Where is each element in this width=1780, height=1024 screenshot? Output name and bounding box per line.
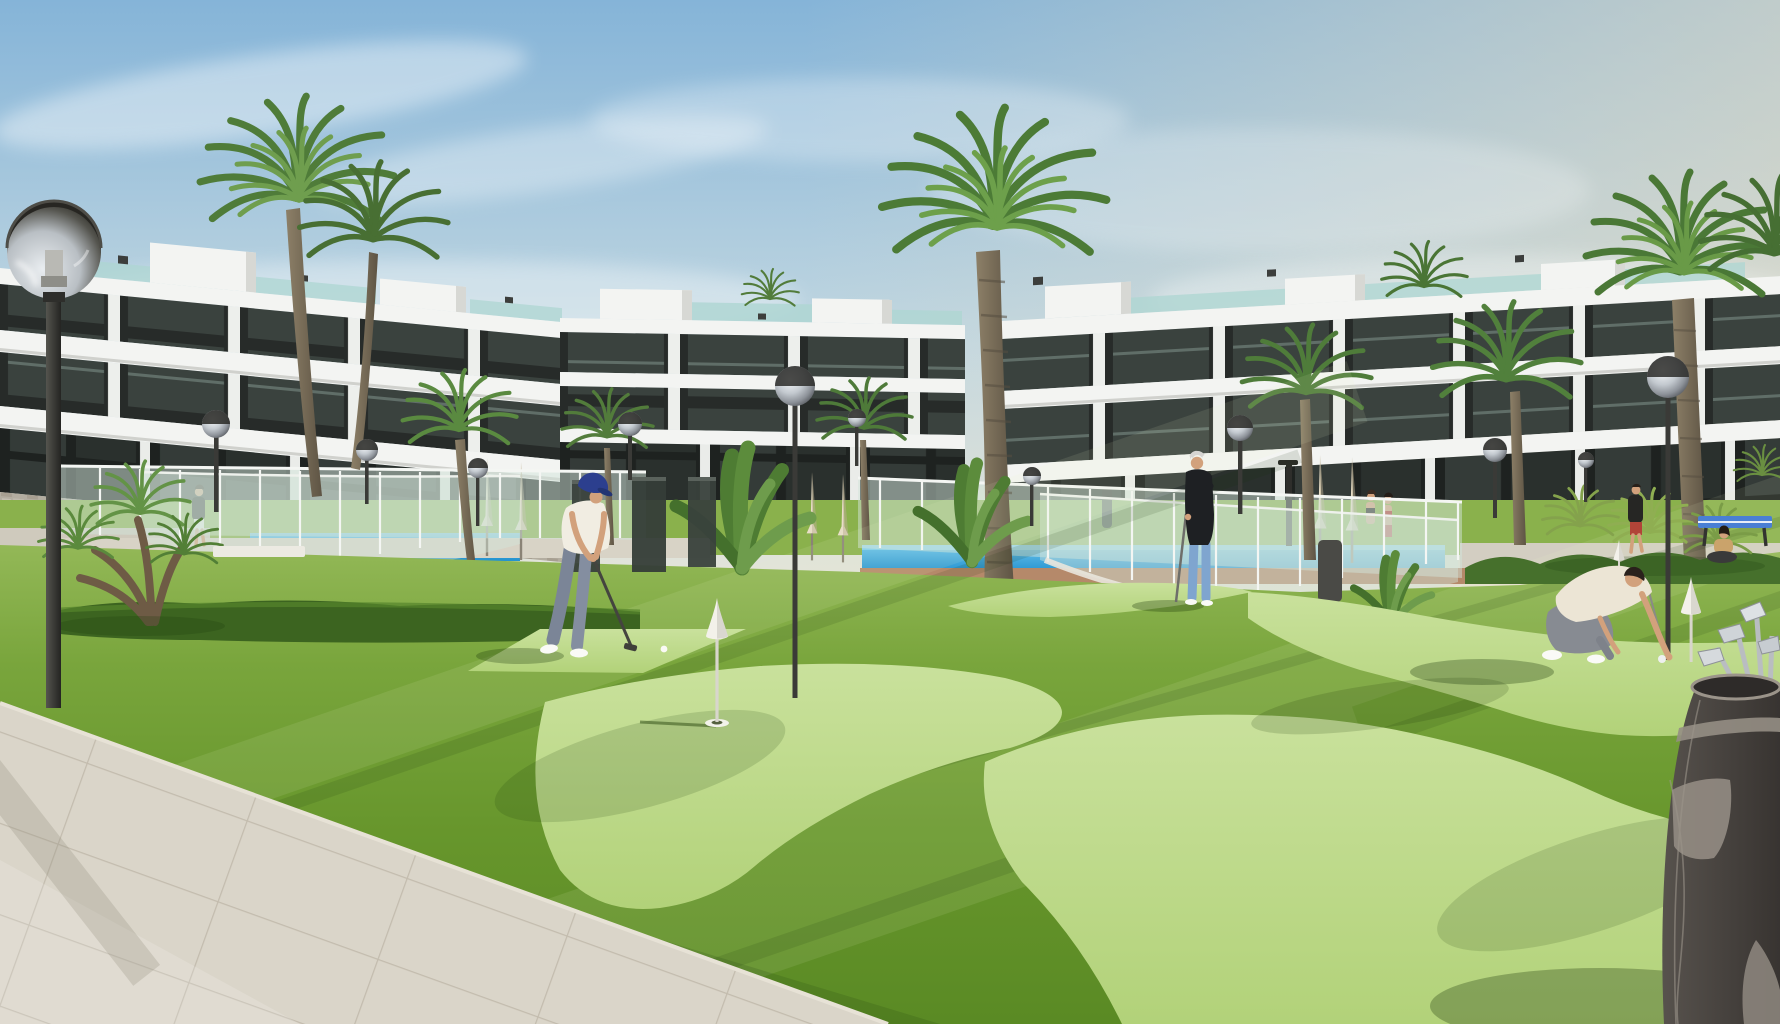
render-scene: Sunny 3D render of a modern white apartm… (0, 0, 1780, 1024)
scene-svg: Sunny 3D render of a modern white apartm… (0, 0, 1780, 1024)
litter-bin (1318, 540, 1342, 602)
bench (213, 546, 305, 557)
golf-ball (661, 646, 668, 653)
